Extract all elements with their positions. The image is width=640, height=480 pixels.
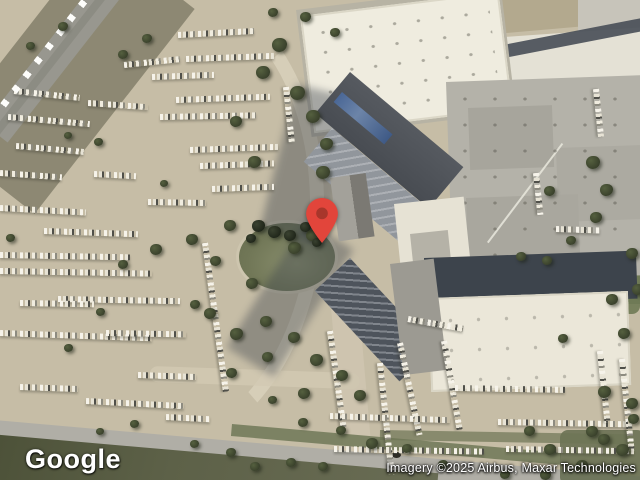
tree <box>268 8 278 17</box>
parking-row <box>20 384 78 392</box>
tree <box>272 38 287 52</box>
tree <box>298 388 310 399</box>
tree <box>598 386 611 398</box>
tree <box>628 414 639 424</box>
tree <box>632 284 640 295</box>
tree <box>298 418 308 427</box>
tree <box>6 234 15 242</box>
roof-units-east <box>450 86 640 276</box>
roof-units-se <box>436 300 623 386</box>
parking-row <box>0 252 130 260</box>
pin-dot <box>316 208 328 220</box>
parking-row <box>498 419 632 427</box>
parking-row <box>0 268 152 277</box>
imagery-attribution: Imagery ©2025 Airbus, Maxar Technologies <box>386 461 636 475</box>
parking-row <box>20 300 94 307</box>
tree <box>310 354 323 366</box>
map-canvas[interactable]: Google Imagery ©2025 Airbus, Maxar Techn… <box>0 0 640 480</box>
parking-row <box>148 199 206 206</box>
google-logo[interactable]: Google <box>25 444 121 475</box>
map-pin-icon[interactable] <box>306 198 338 243</box>
tree <box>268 396 277 404</box>
tree <box>626 398 638 409</box>
pin-body <box>306 198 338 243</box>
parking-row <box>455 385 565 393</box>
tree <box>288 332 300 343</box>
